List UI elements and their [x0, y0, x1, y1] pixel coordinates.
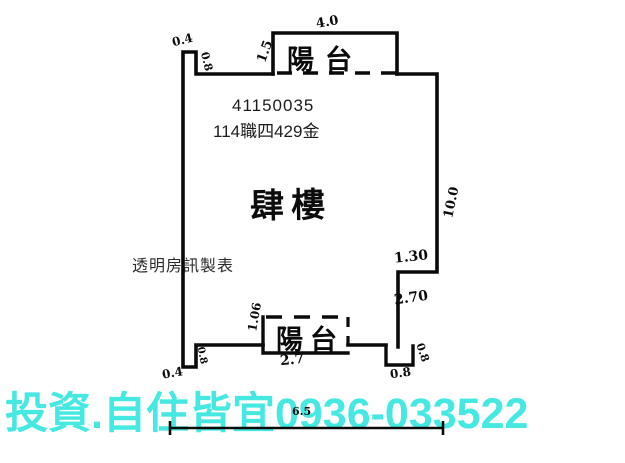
dim-top-balcony-width: 4.0: [315, 13, 340, 32]
floorplan-flyer: 41150035 114職四429金 透明房訊製表 肆樓 陽台 陽台 4.0 1…: [0, 0, 625, 463]
top-balcony-label: 陽台: [287, 38, 363, 77]
floor-name-label: 肆樓: [250, 177, 333, 227]
dim-bottom-balcony-width: 2.7: [279, 351, 305, 369]
dim-top-balcony-depth: 1.5: [254, 38, 276, 64]
ad-banner-text: 投資.自住皆宜0936-033522: [5, 392, 528, 437]
dim-right-wall-height: 10.0: [441, 185, 462, 219]
maker-watermark: 透明房訊製表: [132, 252, 234, 276]
dim-bottom-overall: 6.5: [292, 405, 311, 418]
dim-topleft-notch-width: 0.4: [171, 31, 195, 50]
dim-bottom-balcony-depth: 1.06: [245, 301, 264, 332]
dim-right-step-height: 2.70: [393, 288, 429, 309]
bottom-balcony-label: 陽台: [276, 318, 344, 357]
dim-bottomleft-step-width: 0.4: [161, 364, 184, 381]
dim-bottomleft-step-depth: 0.8: [195, 346, 209, 365]
dim-right-step-width: 1.30: [393, 247, 429, 266]
dim-topleft-notch-depth: 0.8: [198, 51, 215, 73]
case-id-number: 41150035: [232, 96, 314, 116]
corner-box: [386, 346, 413, 365]
case-number: 114職四429金: [213, 117, 319, 142]
dim-corner-box-bottom: 0.8: [389, 365, 412, 382]
dim-corner-box-side: 0.8: [413, 341, 431, 363]
